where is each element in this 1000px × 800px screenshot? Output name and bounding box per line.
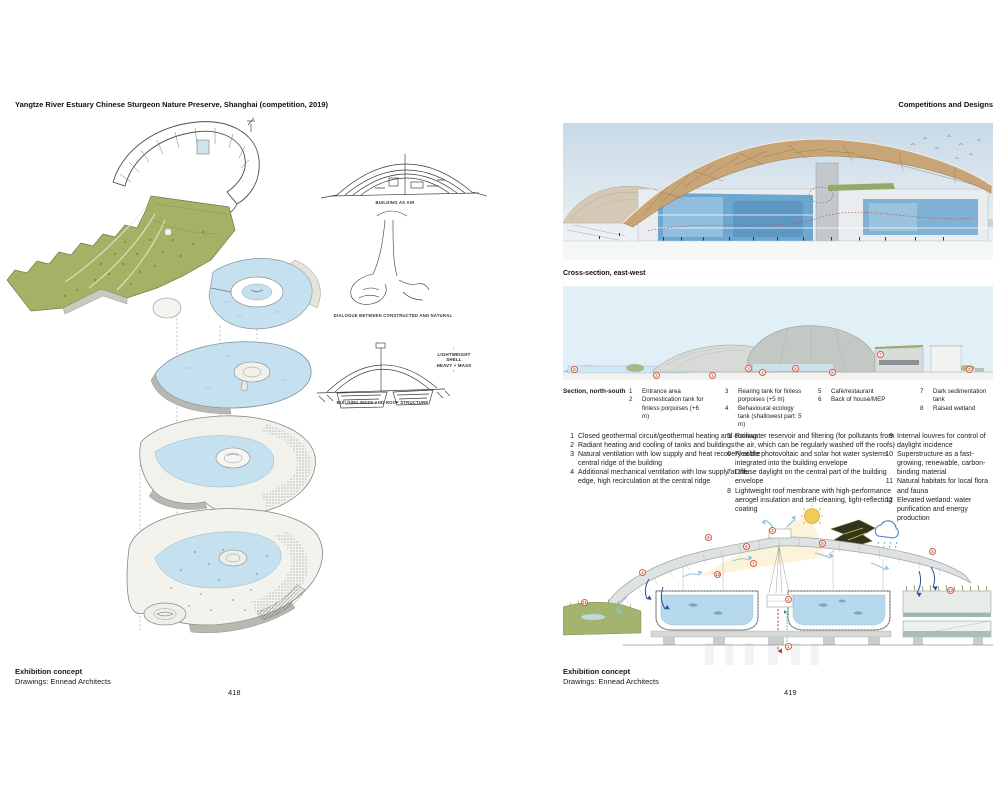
left-caption-title: Exhibition concept xyxy=(15,667,111,677)
diagram-marker: 5 xyxy=(929,548,936,555)
right-caption-title: Exhibition concept xyxy=(563,667,659,677)
landscape-layer xyxy=(7,196,235,318)
systems-list-col-2: 5Rainwater reservoir and filtering (for … xyxy=(720,432,896,514)
section-marker: 8 xyxy=(966,366,973,373)
diagram-marker: 11 xyxy=(581,599,588,606)
book-spread: { "colors": { "accent_red": "#cf5b44", "… xyxy=(0,0,1000,800)
sketch-caption-3: BUILDING MASS AND ROOF STRUCTURE xyxy=(320,400,445,405)
section-marker: 1 xyxy=(709,372,716,379)
systems-item: 11Natural habitats for local flora and f… xyxy=(882,477,994,495)
section-drawing xyxy=(563,286,993,380)
annotation-lightweight: LIGHTWEIGHT SHELL xyxy=(438,352,471,363)
right-caption-credit: Drawings: Ennead Architects xyxy=(563,677,659,687)
systems-item: 10Superstructure as a fast-growing, rene… xyxy=(882,450,994,477)
legend-col-2: 3Rearing tank for finless porpoises (+5 … xyxy=(725,388,807,430)
diagram-marker: 6 xyxy=(743,543,750,550)
legend-item: 1Entrance area xyxy=(629,388,707,396)
left-page-number: 418 xyxy=(228,688,241,697)
right-page-number: 419 xyxy=(784,688,797,697)
right-page-caption: Exhibition concept Drawings: Ennead Arch… xyxy=(563,667,663,687)
systems-item: 7Diffuse daylight on the central part of… xyxy=(720,468,896,486)
systems-diagram xyxy=(563,505,993,665)
diagram-marker: 8 xyxy=(819,540,826,547)
diagram-marker: 1 xyxy=(785,643,792,650)
diagram-marker: 10 xyxy=(714,571,721,578)
legend-col-4: 7Dark sedimentation tank 8Raised wetland xyxy=(920,388,998,413)
diagram-marker: 9 xyxy=(705,534,712,541)
section-marker: 8 xyxy=(571,366,578,373)
legend-item: 8Raised wetland xyxy=(920,405,998,413)
exploded-axonometric-drawing xyxy=(5,112,325,657)
down-arrow-icon: ↓ xyxy=(453,368,455,373)
section-marker: 2 xyxy=(653,372,660,379)
right-page-header: Competitions and Designs xyxy=(693,100,993,109)
legend-item: 6Back of house/MEP xyxy=(818,396,904,404)
systems-item: 9Internal louvres for control of dayligh… xyxy=(882,432,994,450)
sketch-dialogue xyxy=(351,211,429,304)
upper-plan-layer xyxy=(140,416,316,515)
section-marker: 3 xyxy=(745,365,752,372)
legend-item: 5Café/restaurant xyxy=(818,388,904,396)
annotation-heavy: HEAVY + MASS xyxy=(437,363,472,368)
diagram-marker: 12 xyxy=(947,587,954,594)
legend-item: 2Domestication tank for finless porpoise… xyxy=(629,396,707,421)
section-marker: 7 xyxy=(877,351,884,358)
sketch-building-as-air xyxy=(321,154,487,198)
sketch-caption-1: BUILDING AS AIR xyxy=(340,200,450,205)
lower-plan-layer xyxy=(127,509,323,633)
cross-section-label: Cross-section, east-west xyxy=(563,270,645,277)
section-label: Section, north-south xyxy=(563,388,625,395)
left-wetland-grass xyxy=(563,599,641,635)
systems-item: 5Rainwater reservoir and filtering (for … xyxy=(720,432,896,450)
legend-item: 7Dark sedimentation tank xyxy=(920,388,998,405)
sketch-caption-2: DIALOGUE BETWEEN CONSTRUCTED AND NATURAL xyxy=(318,313,468,318)
left-page-caption: Exhibition concept Drawings: Ennead Arch… xyxy=(15,667,111,687)
diagram-marker: 2 xyxy=(785,596,792,603)
rearing-tank-layer xyxy=(151,342,311,414)
legend-item: 4Behavioural ecology tank (shallowest pa… xyxy=(725,405,807,430)
legend-col-1: 1Entrance area 2Domestication tank for f… xyxy=(629,388,707,421)
legend-item: 3Rearing tank for finless porpoises (+5 … xyxy=(725,388,807,405)
handwritten-annotation: ↑ LIGHTWEIGHT SHELL HEAVY + MASS ↓ xyxy=(430,346,478,374)
up-arrow-icon: ↑ xyxy=(453,346,455,351)
section-marker: 6 xyxy=(829,369,836,376)
diagram-marker: 7 xyxy=(750,560,757,567)
cross-section-render xyxy=(563,123,993,260)
left-page-header: Yangtze River Estuary Chinese Sturgeon N… xyxy=(15,100,435,109)
lagoon-layer xyxy=(209,258,320,328)
legend-col-3: 5Café/restaurant 6Back of house/MEP xyxy=(818,388,904,405)
right-wetland xyxy=(903,585,991,645)
left-caption-credit: Drawings: Ennead Architects xyxy=(15,677,111,687)
section-marker: 5 xyxy=(792,365,799,372)
diagram-marker: 3 xyxy=(769,527,776,534)
section-marker: 4 xyxy=(759,369,766,376)
systems-item: 6Flexible photovoltaic and solar hot wat… xyxy=(720,450,896,468)
light-shafts xyxy=(705,643,819,665)
diagram-marker: 4 xyxy=(639,569,646,576)
